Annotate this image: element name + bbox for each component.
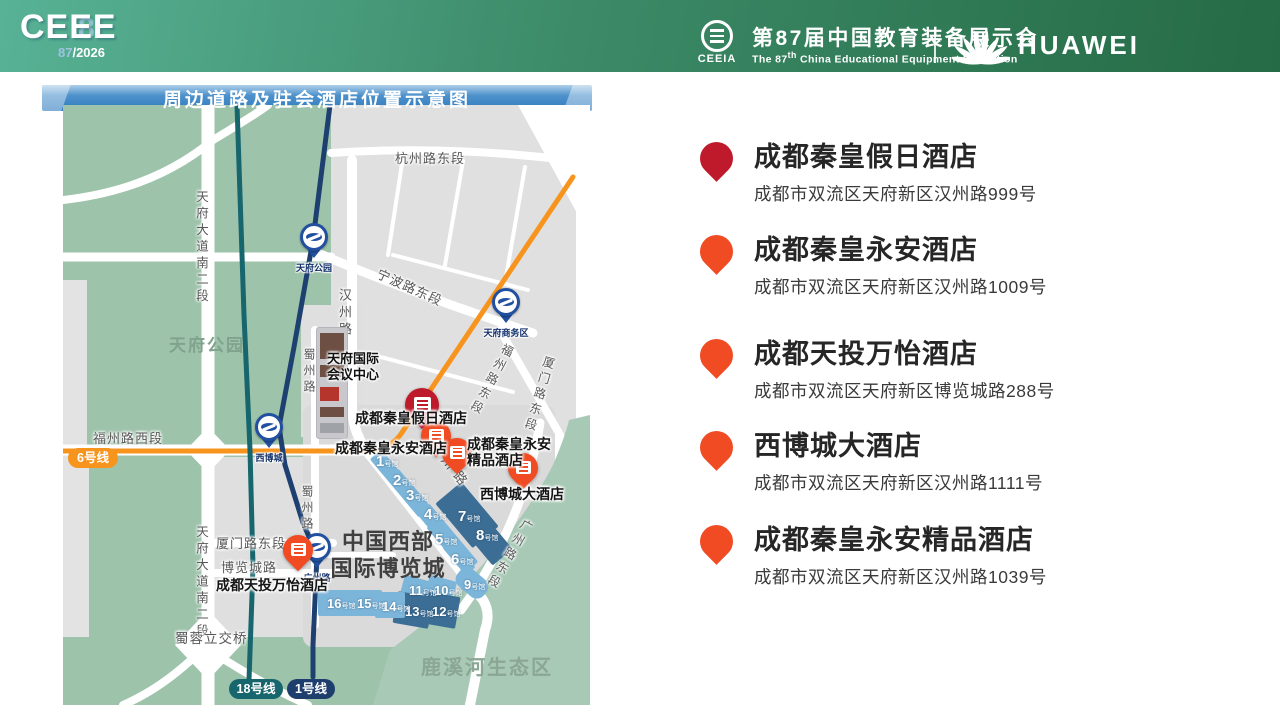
conference-building-block bbox=[320, 407, 344, 417]
map-hotel-label-yongan: 成都秦皇永安酒店 bbox=[335, 438, 447, 458]
eco-area-label: 鹿溪河生态区 bbox=[421, 651, 553, 680]
expo-venue-label: 中国西部 国际博览城 bbox=[329, 528, 447, 582]
hall-number-8: 8号馆 bbox=[476, 527, 498, 544]
map-hotel-label-wanyi: 成都天投万怡酒店 bbox=[216, 575, 328, 595]
hall-number-14: 14号馆 bbox=[382, 599, 410, 614]
hall-number-12: 12号馆 bbox=[432, 604, 460, 619]
hotel-item: 成都秦皇永安精品酒店 成都市双流区天府新区汉州路1039号 bbox=[700, 523, 1047, 589]
hotel-address: 成都市双流区天府新区汉州路999号 bbox=[754, 181, 1037, 206]
hotel-item: 成都秦皇永安酒店 成都市双流区天府新区汉州路1009号 bbox=[700, 233, 1047, 299]
conference-building-sign bbox=[320, 387, 339, 401]
park-label: 天府公园 bbox=[169, 331, 245, 356]
map-title-text: 周边道路及驻会酒店位置示意图 bbox=[163, 85, 471, 112]
conference-center-line2: 会议中心 bbox=[327, 367, 393, 383]
road-label-bolancheng-rd: 博览城路 bbox=[221, 557, 277, 576]
white-corner bbox=[518, 105, 590, 237]
expo-venue-line1: 中国西部 bbox=[329, 528, 447, 555]
metro-station-tianfu-park: 天府公园 bbox=[296, 223, 332, 274]
map-pin-wanyi-hotel bbox=[283, 535, 313, 577]
hotel-address: 成都市双流区天府新区博览城路288号 bbox=[754, 378, 1055, 403]
map-hotel-label-xibocheng: 西博城大酒店 bbox=[480, 484, 564, 504]
header-divider bbox=[934, 27, 936, 63]
metro-logo-icon bbox=[255, 413, 283, 441]
hall-number-15: 15号馆 bbox=[357, 596, 385, 611]
ceee-edition-number: 87 bbox=[58, 45, 72, 60]
ceee-logo: 8 CEEE 87/2026 bbox=[20, 8, 117, 60]
conference-center-line1: 天府国际 bbox=[327, 351, 393, 367]
ceeia-abbr: CEEIA bbox=[694, 53, 740, 65]
hall-number-7: 7号馆 bbox=[458, 508, 480, 525]
hall-number-4: 4号馆 bbox=[424, 506, 446, 523]
map-hotel-label-jingpin: 成都秦皇永安精品酒店 bbox=[467, 436, 551, 468]
hotel-name: 成都秦皇永安精品酒店 bbox=[754, 523, 1047, 557]
metro-station-xibocheng: 西博城 bbox=[251, 413, 287, 464]
ceeia-logo: CEEIA bbox=[694, 20, 740, 65]
hall-number-10: 10号馆 bbox=[434, 583, 462, 598]
huawei-wordmark: HUAWEI bbox=[1018, 30, 1140, 61]
road-label-xiamen-east-sw: 厦门路东段 bbox=[216, 533, 286, 552]
hotel-pin-icon bbox=[700, 431, 733, 479]
ceee-edition-year: /2026 bbox=[72, 45, 105, 60]
road-label-fuzhou-west: 福州路西段 bbox=[93, 428, 163, 447]
header-bar: 8 CEEE 87/2026 CEEIA 第87届中国教育装备展示会 The 8… bbox=[0, 0, 1280, 72]
metro-station-tianfu-cbd: 天府商务区 bbox=[475, 288, 537, 339]
road-label-tianfu-avenue-s: 天府大道南二段 bbox=[192, 525, 211, 641]
expo-venue-line2: 国际博览城 bbox=[329, 555, 447, 582]
metro-station-label: 天府公园 bbox=[296, 261, 332, 274]
hotel-address: 成都市双流区天府新区汉州路1111号 bbox=[754, 470, 1043, 495]
ceee-edition: 87/2026 bbox=[58, 45, 117, 60]
road-label-hangzhou-east: 杭州路东段 bbox=[395, 148, 465, 167]
conference-center-label: 天府国际 会议中心 bbox=[327, 351, 393, 382]
road-label-tianfu-avenue-n: 天府大道南二段 bbox=[192, 190, 211, 306]
ceee-brand: CEEE bbox=[20, 8, 117, 47]
hall-number-11: 11号馆 bbox=[409, 583, 437, 598]
hall-number-9: 9号馆 bbox=[464, 577, 485, 592]
hotel-item: 西博城大酒店 成都市双流区天府新区汉州路1111号 bbox=[700, 429, 1043, 495]
hotel-name: 成都秦皇永安酒店 bbox=[754, 233, 1047, 267]
huawei-flower-icon bbox=[952, 25, 1010, 65]
metro-badge-line18: 18号线 bbox=[229, 679, 283, 699]
building-icon bbox=[450, 446, 465, 459]
conference-building-block bbox=[320, 423, 344, 433]
road-label-shurong-interchange: 蜀蓉立交桥 bbox=[175, 627, 248, 647]
ceeia-ring-icon bbox=[701, 20, 733, 52]
hotel-address: 成都市双流区天府新区汉州路1039号 bbox=[754, 564, 1047, 589]
hotel-pin-icon bbox=[700, 142, 733, 190]
map-hotel-label-jiari: 成都秦皇假日酒店 bbox=[355, 408, 467, 428]
hotel-pin-icon bbox=[700, 525, 733, 573]
metro-badge-line1: 1号线 bbox=[287, 679, 335, 699]
building-icon bbox=[291, 543, 306, 556]
hotel-pin-icon bbox=[700, 235, 733, 283]
hotel-address: 成都市双流区天府新区汉州路1009号 bbox=[754, 274, 1047, 299]
hall-number-6: 6号馆 bbox=[451, 551, 473, 568]
road-label-shuzhou-rd-s: 蜀州路 bbox=[299, 485, 316, 533]
metro-logo-icon bbox=[492, 288, 520, 316]
hall-number-16: 16号馆 bbox=[327, 596, 355, 611]
page: 8 CEEE 87/2026 CEEIA 第87届中国教育装备展示会 The 8… bbox=[0, 0, 1280, 720]
hotel-name: 西博城大酒店 bbox=[754, 429, 1043, 463]
hall-number-3: 3号馆 bbox=[406, 487, 428, 504]
hotel-item: 成都天投万怡酒店 成都市双流区天府新区博览城路288号 bbox=[700, 337, 1055, 403]
metro-badge-line6: 6号线 bbox=[68, 448, 118, 468]
metro-station-label: 西博城 bbox=[251, 451, 287, 464]
hotel-name: 成都秦皇假日酒店 bbox=[754, 140, 1037, 174]
location-map: 1号馆 2号馆 3号馆 4号馆 5号馆 6号馆 7号馆 8号馆 9号馆 10号馆… bbox=[63, 105, 590, 705]
hotel-legend-list: 成都秦皇假日酒店 成都市双流区天府新区汉州路999号 成都秦皇永安酒店 成都市双… bbox=[700, 138, 1265, 608]
metro-logo-icon bbox=[300, 223, 328, 251]
hotel-item: 成都秦皇假日酒店 成都市双流区天府新区汉州路999号 bbox=[700, 140, 1037, 206]
hotel-pin-icon bbox=[700, 339, 733, 387]
metro-station-label: 天府商务区 bbox=[475, 326, 537, 339]
hotel-name: 成都天投万怡酒店 bbox=[754, 337, 1055, 371]
